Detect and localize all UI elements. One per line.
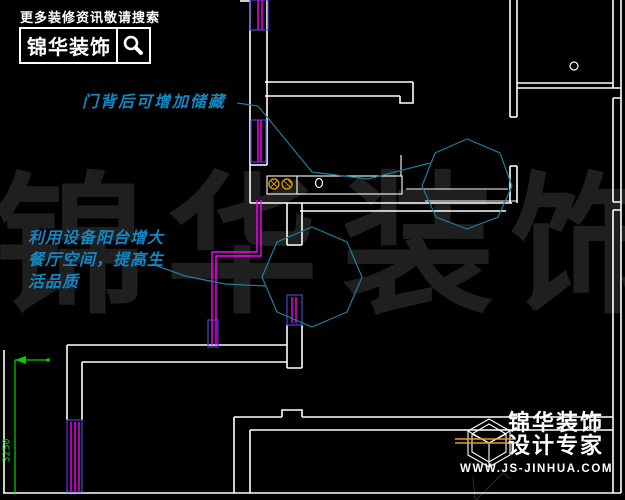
footer-branding: 锦华装饰 设计专家 bbox=[508, 412, 604, 458]
search-tagline: 更多装修资讯敬请搜索 bbox=[20, 7, 160, 26]
magnifier-icon bbox=[118, 34, 149, 58]
note-door-storage: 门背后可增加储藏 bbox=[82, 88, 226, 112]
search-branding-box: 锦华装饰 bbox=[19, 27, 151, 64]
zone-octagon-right bbox=[422, 139, 512, 229]
note-balcony-dining: 利用设备阳台增大 餐厅空间，提高生 活品质 bbox=[28, 224, 164, 290]
footer-brand-slogan: 设计专家 bbox=[508, 435, 604, 458]
note-line: 餐厅空间，提高生 bbox=[28, 246, 164, 268]
note-line: 利用设备阳台增大 bbox=[28, 224, 164, 246]
outlet-symbols bbox=[269, 179, 292, 189]
leader-line-note2 bbox=[152, 264, 266, 286]
cad-floorplan-canvas: 锦 华 装 饰 bbox=[0, 0, 625, 500]
annotation-lines bbox=[152, 103, 512, 327]
faint-lines bbox=[473, 473, 511, 500]
dimension-line bbox=[15, 356, 49, 493]
dimension-value: 3250 bbox=[2, 430, 13, 472]
footer-brand-name: 锦华装饰 bbox=[508, 412, 604, 435]
note-line: 活品质 bbox=[28, 268, 164, 290]
zone-octagon-left bbox=[262, 227, 362, 327]
footer-website: WWW.JS-JINHUA.COM bbox=[460, 463, 613, 475]
brand-name: 锦华装饰 bbox=[21, 31, 116, 60]
